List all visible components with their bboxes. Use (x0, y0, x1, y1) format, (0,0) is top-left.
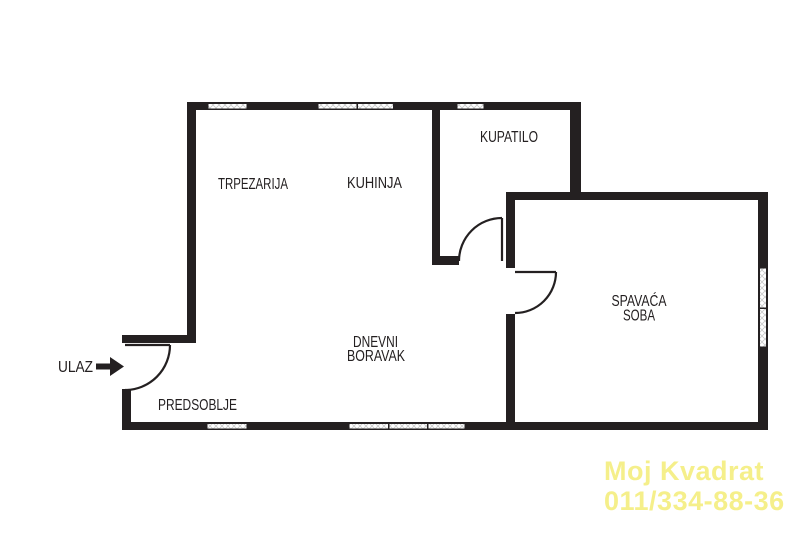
wall-bedroom-left-upper (506, 192, 515, 268)
room-label-kupatilo: KUPATILO (480, 129, 538, 146)
right-arrow-icon (96, 357, 124, 376)
watermark-line1: Moj Kvadrat (604, 456, 785, 486)
wall-kupatilo-bottom (432, 256, 459, 265)
wall-step (122, 335, 196, 343)
wall-bedroom-top (506, 192, 768, 200)
watermark-line2: 011/334-88-36 (604, 486, 785, 516)
room-label-trpezarija: TRPEZARIJA (218, 176, 288, 193)
room-label-predsoblje: PREDSOBLJE (158, 397, 237, 414)
room-label-kuhinja: KUHINJA (347, 175, 402, 192)
window (318, 104, 357, 110)
kupatilo-door (459, 218, 502, 261)
window (208, 104, 247, 110)
watermark: Moj Kvadrat 011/334-88-36 (604, 456, 785, 516)
room-label-dnevni-boravak-line2: BORAVAK (347, 348, 405, 365)
door-arc (515, 272, 556, 313)
door-arc (459, 218, 502, 261)
windows (207, 104, 767, 430)
room-label-spavaca-soba-line2: SOBA (623, 308, 655, 325)
wall-bedroom-left-lower (506, 314, 515, 430)
window (428, 424, 465, 430)
window (358, 104, 394, 110)
window (207, 424, 247, 430)
wall-kupatilo-right (570, 102, 581, 200)
entrance-label: ULAZ (58, 359, 93, 376)
window (457, 104, 484, 110)
floorplan-page: TRPEZARIJA KUHINJA KUPATILO SPAVAĆA SOBA… (0, 0, 800, 533)
window (349, 424, 389, 430)
bedroom-door (515, 272, 556, 313)
door-arc (125, 345, 170, 390)
floorplan-drawing: TRPEZARIJA KUHINJA KUPATILO SPAVAĆA SOBA… (0, 0, 800, 533)
window (389, 424, 428, 430)
wall-left-upper (187, 102, 196, 343)
walls (122, 102, 768, 430)
wall-kupatilo-left (432, 102, 440, 265)
entrance-door (125, 345, 170, 390)
window (760, 309, 767, 348)
window (760, 268, 767, 308)
